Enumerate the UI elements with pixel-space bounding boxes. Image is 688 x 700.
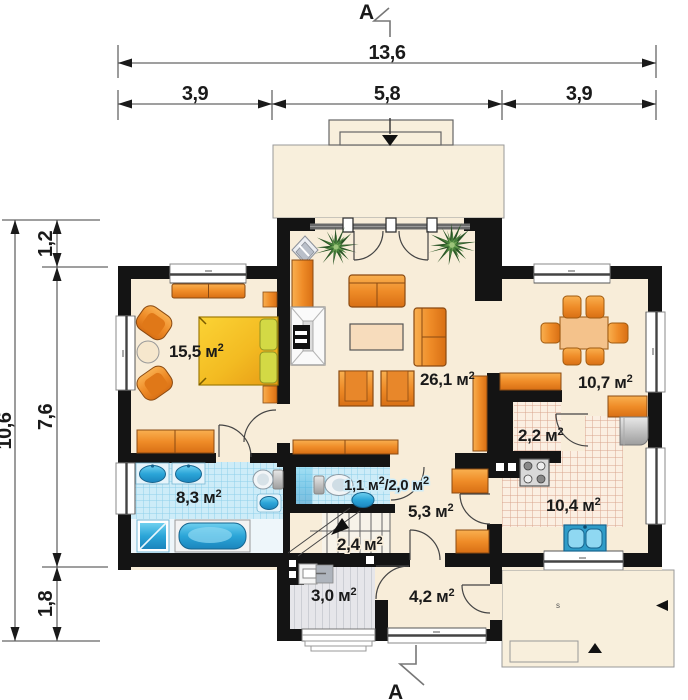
svg-text:4,2 м2: 4,2 м2 <box>409 587 454 606</box>
svg-text:1,2: 1,2 <box>35 230 57 257</box>
svg-text:3,9: 3,9 <box>182 83 209 105</box>
svg-text:26,1 м2: 26,1 м2 <box>420 370 475 389</box>
svg-text:10,4 м2: 10,4 м2 <box>546 496 601 515</box>
svg-text:2,4 м2: 2,4 м2 <box>337 535 382 554</box>
svg-text:1,1 м2/2,0 м2: 1,1 м2/2,0 м2 <box>344 475 429 494</box>
svg-text:8,3 м2: 8,3 м2 <box>176 488 221 507</box>
svg-text:15,5 м2: 15,5 м2 <box>169 342 224 361</box>
svg-text:s: s <box>556 601 560 610</box>
svg-text:2,2 м2: 2,2 м2 <box>518 426 563 445</box>
svg-text:1,8: 1,8 <box>35 590 57 617</box>
svg-text:3,9: 3,9 <box>566 83 593 105</box>
svg-text:10,6: 10,6 <box>0 412 16 449</box>
svg-text:A: A <box>388 681 403 700</box>
svg-text:A: A <box>359 1 374 24</box>
svg-text:7,6: 7,6 <box>35 403 57 430</box>
svg-text:5,8: 5,8 <box>374 83 401 105</box>
svg-text:5,3 м2: 5,3 м2 <box>408 502 453 521</box>
svg-text:3,0 м2: 3,0 м2 <box>311 586 356 605</box>
svg-text:13,6: 13,6 <box>369 42 406 64</box>
svg-text:10,7 м2: 10,7 м2 <box>578 373 633 392</box>
